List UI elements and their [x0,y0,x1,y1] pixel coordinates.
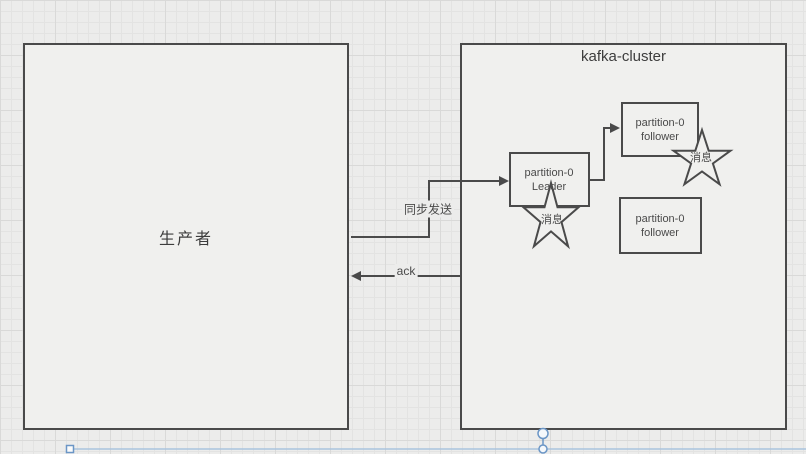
ack-edge-label: ack [395,264,418,278]
producer-label: 生产者 [159,225,213,249]
selection-handle-circle-top[interactable] [538,429,548,439]
selection-handle-square[interactable] [67,446,74,453]
sync-send-edge-label: 同步发送 [402,201,454,218]
partition-leader-node[interactable] [509,152,590,207]
arrowhead-left-icon [351,271,361,281]
partition-follower-bottom-node[interactable] [619,197,702,254]
ack-arrow[interactable] [351,271,461,281]
partition-follower-top-node[interactable] [621,102,699,157]
kafka-cluster-title: kafka-cluster [581,45,666,65]
producer-node[interactable]: 生产者 [23,43,349,430]
diagram-canvas[interactable]: 生产者 kafka-cluster [0,0,806,454]
selection-handle-circle-bottom[interactable] [539,445,547,453]
